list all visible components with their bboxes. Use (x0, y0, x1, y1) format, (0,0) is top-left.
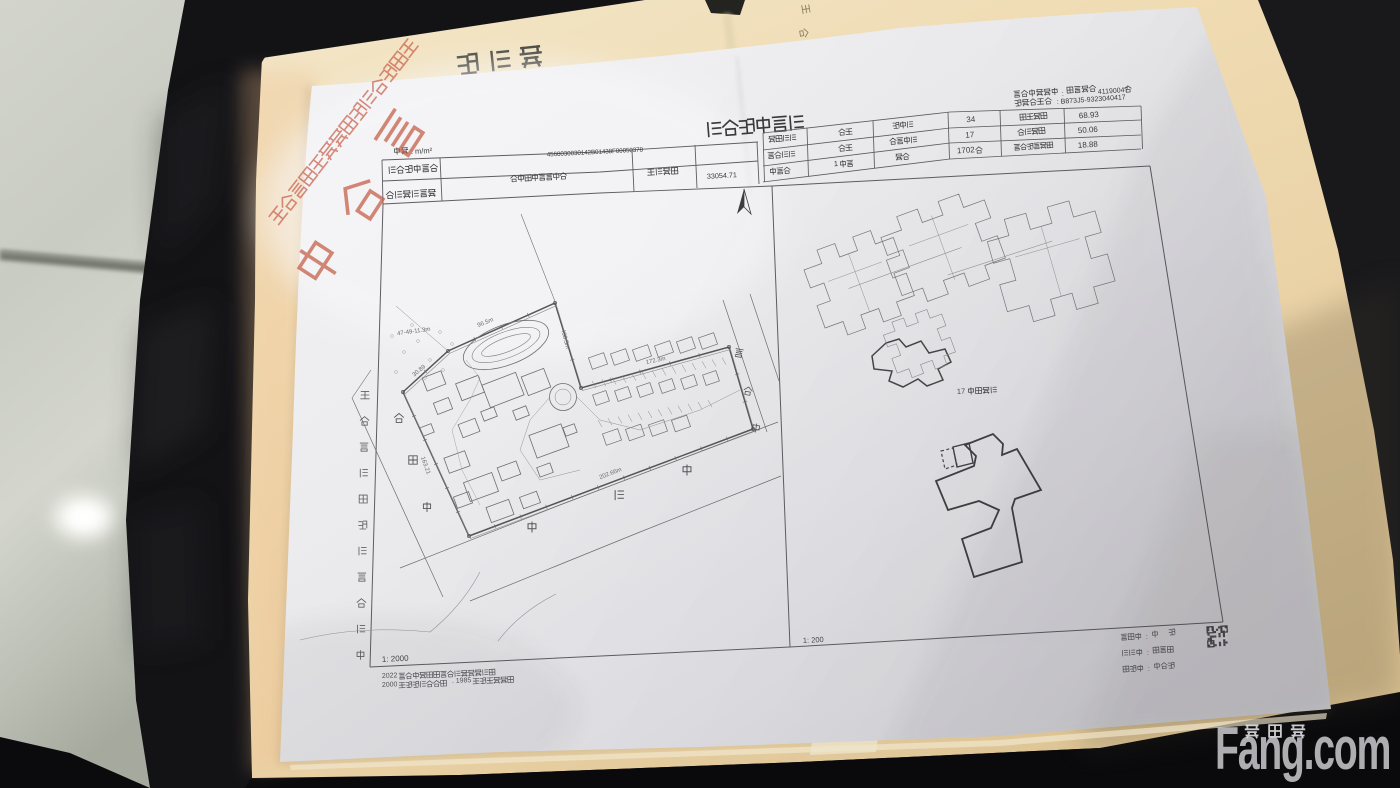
svg-text:Fang.com: Fang.com (1215, 715, 1390, 782)
